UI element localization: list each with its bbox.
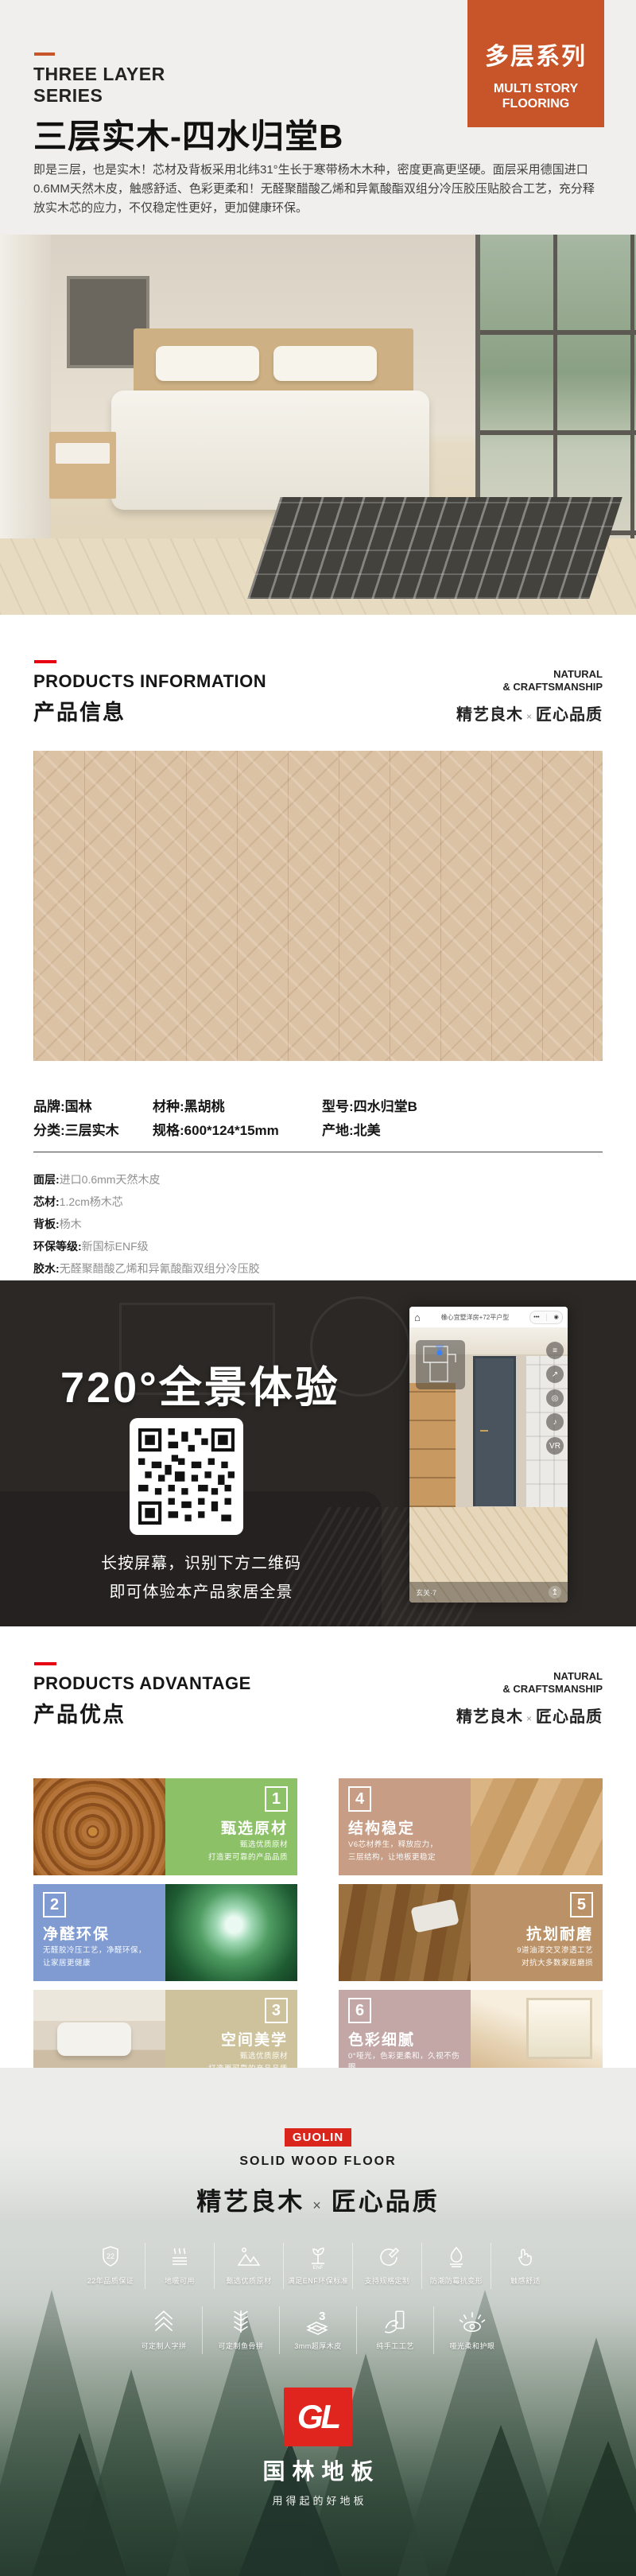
fishbone-icon bbox=[227, 2308, 254, 2335]
phone-button-rail: ≡ ↗ ◎ ♪ VR bbox=[546, 1342, 564, 1455]
tile-title: 抗划耐磨 bbox=[526, 1922, 593, 1944]
series-line1: THREE LAYER bbox=[33, 64, 165, 85]
section-title-cn: 产品优点 bbox=[33, 1697, 126, 1728]
eye-protect-icon bbox=[459, 2308, 486, 2335]
badge-subtitle-en: MULTI STORY FLOORING bbox=[467, 81, 604, 111]
natural-craftsmanship-en: NATURAL & CRAFTSMANSHIP bbox=[456, 668, 603, 694]
feature-label: 哑光柔和护眼 bbox=[449, 2341, 494, 2351]
tile-number: 2 bbox=[43, 1892, 66, 1917]
feature-item: 3 3mm超厚木皮 bbox=[280, 2306, 357, 2354]
detail-core: 芯材:1.2cm杨木芯 bbox=[33, 1191, 603, 1213]
handcraft-icon bbox=[382, 2308, 409, 2335]
advantage-section-header: PRODUCTS ADVANTAGE 产品优点 NATURAL & CRAFTS… bbox=[33, 1662, 603, 1742]
detail-eco-grade: 环保等级:新国标ENF级 bbox=[33, 1235, 603, 1257]
feature-label: 可定制人字拼 bbox=[141, 2341, 186, 2351]
detail-glue: 胶水:无醛聚醋酸乙烯和异氰酸酯双组分冷压胶 bbox=[33, 1257, 603, 1280]
footer-section: GUOLIN SOLID WOOD FLOOR 精艺良木×匠心品质 22 22年… bbox=[0, 2068, 636, 2576]
tile-number: 4 bbox=[348, 1786, 371, 1812]
badge-title-cn: 多层系列 bbox=[467, 37, 604, 72]
tile-title: 甄选原材 bbox=[221, 1816, 288, 1838]
spec-category: 分类:三层实木 bbox=[33, 1119, 153, 1139]
feature-label: 防潮防霉抗变形 bbox=[430, 2275, 483, 2286]
custom-spec-icon bbox=[374, 2244, 400, 2270]
tile-number: 1 bbox=[265, 1786, 288, 1812]
products-advantage-section: PRODUCTS ADVANTAGE 产品优点 NATURAL & CRAFTS… bbox=[0, 1626, 636, 2068]
detail-surface: 面层:进口0.6mm天然木皮 bbox=[33, 1168, 603, 1191]
feature-item: 可定制鱼骨拼 bbox=[203, 2306, 280, 2354]
floorplan-minimap bbox=[416, 1340, 465, 1389]
specs-block: 品牌:国林 材种:黑胡桃 型号:四水归堂B 分类:三层实木 规格:600*124… bbox=[33, 1093, 603, 1280]
spec-origin: 产地:北美 bbox=[322, 1119, 603, 1139]
brand-name: 国林地板 bbox=[0, 2454, 636, 2486]
natural-craftsmanship-en: NATURAL & CRAFTSMANSHIP bbox=[456, 1670, 603, 1696]
section-right-text: NATURAL & CRAFTSMANSHIP 精艺良木×匠心品质 bbox=[456, 668, 603, 725]
products-information-section: PRODUCTS INFORMATION 产品信息 NATURAL & CRAF… bbox=[0, 615, 636, 1280]
feature-label: 地暖可用 bbox=[165, 2275, 195, 2286]
guolin-badge: GUOLIN bbox=[285, 2128, 351, 2147]
series-label: THREE LAYER SERIES bbox=[33, 64, 165, 107]
hand-touch-icon bbox=[513, 2244, 538, 2270]
footer-subtitle: SOLID WOOD FLOOR bbox=[0, 2154, 636, 2169]
door-shape bbox=[473, 1356, 516, 1506]
floor-install-photo bbox=[339, 1884, 471, 1981]
craftsmanship-cn: 精艺良木×匠心品质 bbox=[456, 701, 603, 725]
feature-label: 可定制鱼骨拼 bbox=[218, 2341, 263, 2351]
qr-code[interactable] bbox=[130, 1418, 243, 1535]
feature-item: 甄选优质原材 bbox=[215, 2243, 284, 2289]
wood-texture-photo bbox=[33, 751, 603, 1061]
detail-backboard: 背板:杨木 bbox=[33, 1213, 603, 1235]
feature-item: 地暖可用 bbox=[145, 2243, 215, 2289]
shield-22-icon: 22 bbox=[98, 2244, 123, 2270]
tile-title: 色彩细腻 bbox=[348, 2028, 415, 2050]
product-description: 即是三层，也是实木！芯材及背板采用北纬31°生长于寒带杨木木种，密度更高更坚硬。… bbox=[33, 161, 604, 218]
features-row-2: 可定制人字拼 可定制鱼骨拼 3 3mm超厚木皮 纯手工工艺 哑光柔和护眼 bbox=[0, 2306, 636, 2354]
tile-number: 6 bbox=[348, 1998, 371, 2023]
craftsmanship-cn: 精艺良木×匠心品质 bbox=[456, 1704, 603, 1727]
miniprogram-capsule: ••• ◉ bbox=[529, 1311, 563, 1324]
more-dots-icon: ••• bbox=[533, 1315, 539, 1320]
feature-item: 纯手工工艺 bbox=[357, 2306, 434, 2354]
menu-icon: ≡ bbox=[546, 1342, 564, 1359]
panorama-section: 720°全景体验 bbox=[0, 1280, 636, 1626]
feature-item: 支持规格定制 bbox=[353, 2243, 422, 2289]
qr-tip-line1: 长按屏幕，识别下方二维码 bbox=[32, 1549, 370, 1578]
section-title-en: PRODUCTS INFORMATION bbox=[33, 671, 266, 692]
home-icon: ⌂ bbox=[414, 1311, 421, 1323]
divider-line bbox=[33, 1152, 603, 1152]
rug-shape bbox=[247, 497, 622, 599]
spec-brand: 品牌:国林 bbox=[33, 1095, 153, 1115]
feature-item: 哑光柔和护眼 bbox=[434, 2306, 510, 2354]
pillow-shape bbox=[156, 346, 259, 381]
panorama-title: 720°全景体验 bbox=[60, 1352, 340, 1415]
spec-details: 面层:进口0.6mm天然木皮 芯材:1.2cm杨木芯 背板:杨木 环保等级:新国… bbox=[33, 1168, 603, 1280]
advantage-tile-5: 5 抗划耐磨 9道油漆交叉渗透工艺 对抗大多数家居磨损 bbox=[339, 1884, 603, 1981]
phone-mockup: ⌂ 橡心宜墅洋房+72平户型 ••• ◉ ≡ ↗ bbox=[409, 1307, 568, 1603]
tile-title: 空间美学 bbox=[221, 2028, 288, 2050]
tile-number: 3 bbox=[265, 1998, 288, 2023]
orange-dash bbox=[34, 52, 55, 56]
upload-icon: ↥ bbox=[549, 1586, 561, 1599]
series-badge: 多层系列 MULTI STORY FLOORING bbox=[467, 0, 604, 127]
scene-label: 玄关·7 bbox=[416, 1587, 436, 1598]
phone-bottombar: 玄关·7 ↥ bbox=[409, 1582, 568, 1603]
feature-item: 可定制人字拼 bbox=[126, 2306, 203, 2354]
share-arrow-icon: ↗ bbox=[546, 1366, 564, 1383]
feature-label: 满足ENF环保标准 bbox=[288, 2275, 349, 2286]
times-sign: × bbox=[523, 711, 536, 722]
feature-item: 防潮防霉抗变形 bbox=[422, 2243, 491, 2289]
water-droplet-photo bbox=[165, 1884, 297, 1981]
header-section: THREE LAYER SERIES 三层实木-四水归堂B 即是三层，也是实木！… bbox=[0, 0, 636, 235]
floor-heating-icon bbox=[167, 2244, 192, 2270]
duvet-shape bbox=[111, 390, 429, 510]
specs-row: 分类:三层实木 规格:600*124*15mm 产地:北美 bbox=[33, 1117, 603, 1140]
music-icon: ♪ bbox=[546, 1413, 564, 1431]
section-title-en: PRODUCTS ADVANTAGE bbox=[33, 1673, 251, 1694]
vr-icon: VR bbox=[546, 1437, 564, 1455]
feature-label: 支持规格定制 bbox=[364, 2275, 409, 2286]
phone-topbar: ⌂ 橡心宜墅洋房+72平户型 ••• ◉ bbox=[409, 1307, 568, 1327]
spec-material: 材种:黑胡桃 bbox=[153, 1095, 322, 1115]
water-drop-icon bbox=[444, 2244, 469, 2270]
qr-pattern bbox=[138, 1428, 235, 1525]
qr-instructions: 长按屏幕，识别下方二维码 即可体验本产品家居全景 bbox=[32, 1549, 370, 1607]
feature-item: 22 22年品质保证 bbox=[76, 2243, 145, 2289]
feature-label: 22年品质保证 bbox=[87, 2275, 134, 2286]
tile-title: 净醛环保 bbox=[43, 1922, 110, 1944]
capsule-circle-icon: ◉ bbox=[554, 1314, 559, 1320]
spec-size: 规格:600*124*15mm bbox=[153, 1119, 322, 1139]
tree-rings-photo bbox=[33, 1778, 165, 1875]
series-line2: SERIES bbox=[33, 85, 165, 107]
gl-logo: GL bbox=[284, 2388, 352, 2446]
feature-label: 纯手工工艺 bbox=[376, 2341, 414, 2351]
disc-icon: ◎ bbox=[546, 1389, 564, 1407]
bedroom-photo bbox=[0, 235, 636, 615]
specs-row: 品牌:国林 材种:黑胡桃 型号:四水归堂B bbox=[33, 1093, 603, 1117]
product-detail-page: THREE LAYER SERIES 三层实木-四水归堂B 即是三层，也是实木！… bbox=[0, 0, 636, 2576]
feature-item: ENF 满足ENF环保标准 bbox=[284, 2243, 353, 2289]
times-sign: × bbox=[523, 1713, 536, 1724]
info-section-header: PRODUCTS INFORMATION 产品信息 NATURAL & CRAF… bbox=[33, 660, 603, 740]
product-title: 三层实木-四水归堂B bbox=[33, 110, 343, 158]
red-dash bbox=[34, 660, 56, 663]
svg-text:3: 3 bbox=[319, 2310, 325, 2323]
brand-tagline: 用得起的好地板 bbox=[0, 2492, 636, 2508]
feature-label: 甄选优质原材 bbox=[226, 2275, 271, 2286]
veneer-3mm-icon: 3 bbox=[304, 2308, 332, 2335]
features-row-1: 22 22年品质保证 地暖可用 甄选优质原材 ENF 满足ENF环保标准 bbox=[0, 2243, 636, 2289]
feature-item: 触感舒适 bbox=[491, 2243, 560, 2289]
advantage-tile-4: 4 结构稳定 V6芯材养生，释放应力， 三层结构，让地板更稳定 bbox=[339, 1778, 603, 1875]
footer-content: GUOLIN SOLID WOOD FLOOR 精艺良木×匠心品质 22 22年… bbox=[0, 2068, 636, 2576]
spec-model: 型号:四水归堂B bbox=[322, 1095, 603, 1115]
wood-planks-photo bbox=[471, 1778, 603, 1875]
phone-page-title: 橡心宜墅洋房+72平户型 bbox=[421, 1313, 529, 1322]
mountains-icon bbox=[236, 2244, 262, 2270]
times-sign: × bbox=[304, 2197, 332, 2213]
feature-label: 触感舒适 bbox=[510, 2275, 541, 2286]
svg-text:ENF: ENF bbox=[313, 2265, 324, 2270]
feature-label: 3mm超厚木皮 bbox=[294, 2341, 342, 2351]
qr-tip-line2: 即可体验本产品家居全景 bbox=[32, 1578, 370, 1607]
advantage-grid: 1 甄选原材 甄选优质原材 打造更可靠的产品品质 4 结构稳定 V6芯材养生，释… bbox=[33, 1778, 603, 2087]
enf-sprout-icon: ENF bbox=[305, 2244, 331, 2270]
svg-text:22: 22 bbox=[107, 2252, 114, 2260]
tile-number: 5 bbox=[570, 1892, 593, 1917]
footer-slogan: 精艺良木×匠心品质 bbox=[0, 2182, 636, 2217]
pillow-shape bbox=[273, 346, 377, 381]
advantage-tile-2: 2 净醛环保 无醛胶冷压工艺，净醛环保， 让家居更健康 bbox=[33, 1884, 297, 1981]
section-title-cn: 产品信息 bbox=[33, 695, 126, 726]
nightstand-shape bbox=[49, 432, 116, 499]
red-dash bbox=[34, 1662, 56, 1665]
advantage-tile-1: 1 甄选原材 甄选优质原材 打造更可靠的产品品质 bbox=[33, 1778, 297, 1875]
herringbone-icon bbox=[150, 2308, 177, 2335]
window-shape bbox=[475, 235, 636, 542]
section-right-text: NATURAL & CRAFTSMANSHIP 精艺良木×匠心品质 bbox=[456, 1670, 603, 1727]
tile-title: 结构稳定 bbox=[348, 1816, 415, 1838]
